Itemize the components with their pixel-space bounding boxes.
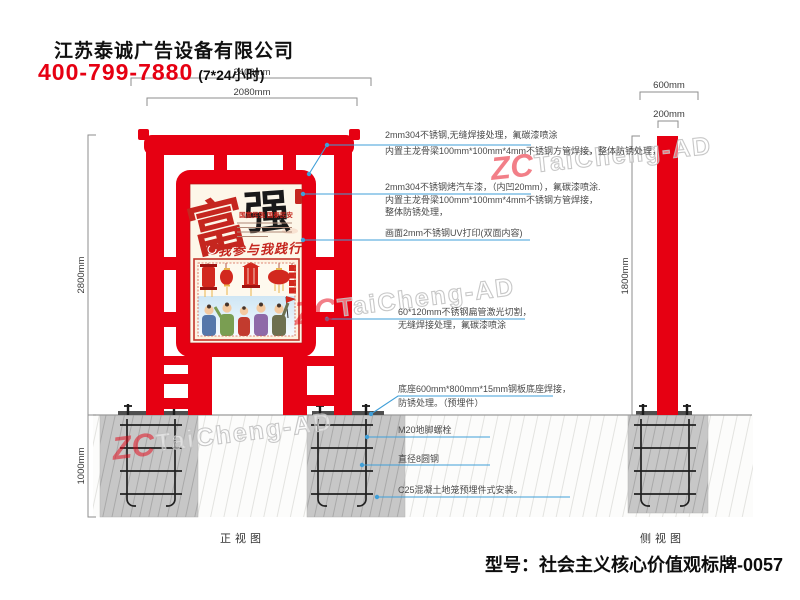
watermark-logo: ZC xyxy=(109,426,158,467)
annotation-line: 底座600mm*800mm*15mm钢板底座焊接， xyxy=(398,384,571,395)
page: 富 强 国富民强 国泰民安 我参与我践行 xyxy=(0,0,800,600)
annotation-line: 60*120mm不锈钢扁管激光切割， xyxy=(398,307,532,318)
annotation-base-plate: 底座600mm*800mm*15mm钢板底座焊接， 防锈处理。（预埋件） xyxy=(398,384,571,408)
annotation-panel: 2mm304不锈钢烤汽车漆，（内凹20mm），氟碳漆喷涂. 内置主龙骨梁100m… xyxy=(385,182,601,218)
dim-600: 600mm xyxy=(653,80,685,91)
phone-number: 400-799-7880 xyxy=(38,59,193,85)
front-view-label: 正视图 xyxy=(220,530,265,546)
dim-1000: 1000mm xyxy=(76,447,87,484)
model-number: 型号：社会主义核心价值观标牌-0057 xyxy=(485,551,783,577)
dim-2080: 2080mm xyxy=(234,87,271,98)
dim-1800: 1800mm xyxy=(620,257,631,294)
poster: 富 强 国富民强 国泰民安 我参与我践行 xyxy=(181,183,303,343)
annotation-line: M20地脚螺栓 xyxy=(398,425,452,436)
service-hours: (7*24小时) xyxy=(198,67,264,83)
watermark-logo: ZC xyxy=(291,291,340,332)
foundation-side xyxy=(628,415,708,513)
dim-2800: 2800mm xyxy=(76,256,87,293)
side-view-column xyxy=(657,136,678,415)
annotation-line: 直径8圆钢 xyxy=(398,454,439,465)
annotation-outer-frame: 2mm304不锈钢,无缝焊接处理，氟碳漆喷涂 内置主龙骨梁100mm*100mm… xyxy=(385,130,661,156)
poster-seal xyxy=(295,189,302,204)
poster-picture xyxy=(194,259,299,340)
annotation-line: 2mm304不锈钢烤汽车漆，（内凹20mm），氟碳漆喷涂. xyxy=(385,182,601,193)
annotation-line: C25混凝土地笼预埋件式安装。 xyxy=(398,485,523,496)
dim-200: 200mm xyxy=(653,109,685,120)
annotation-print-face: 画面2mm不锈钢UV打印(双面内容) xyxy=(385,228,523,239)
annotation-line: 内置主龙骨梁100mm*100mm*4mm不锈钢方管焊接， xyxy=(385,195,601,206)
phone-row: 400-799-7880(7*24小时) xyxy=(38,59,264,86)
annotation-concrete: C25混凝土地笼预埋件式安装。 xyxy=(398,485,523,496)
poster-subtitle: 国富民强 国泰民安 xyxy=(239,210,293,219)
annotation-line: 防锈处理。（预埋件） xyxy=(398,398,571,409)
annotation-anchor-bolt: M20地脚螺栓 xyxy=(398,425,452,436)
annotation-line: 2mm304不锈钢,无缝焊接处理，氟碳漆喷涂 xyxy=(385,130,661,141)
annotation-round-steel: 直径8圆钢 xyxy=(398,454,439,465)
annotation-line: 画面2mm不锈钢UV打印(双面内容) xyxy=(385,228,523,239)
technical-drawing: 富 强 国富民强 国泰民安 我参与我践行 xyxy=(0,0,800,600)
annotation-flat-tube: 60*120mm不锈钢扁管激光切割， 无缝焊接处理，氟碳漆喷涂 xyxy=(398,307,532,330)
annotation-line: 整体防锈处理， xyxy=(385,207,601,218)
annotation-line: 无缝焊接处理，氟碳漆喷涂 xyxy=(398,320,532,331)
poster-slogan: 我参与我践行 xyxy=(218,241,303,259)
annotation-line: 内置主龙骨梁100mm*100mm*4mm不锈钢方管焊接，整体防锈处理， xyxy=(385,146,661,157)
side-view-label: 侧视图 xyxy=(640,530,685,546)
